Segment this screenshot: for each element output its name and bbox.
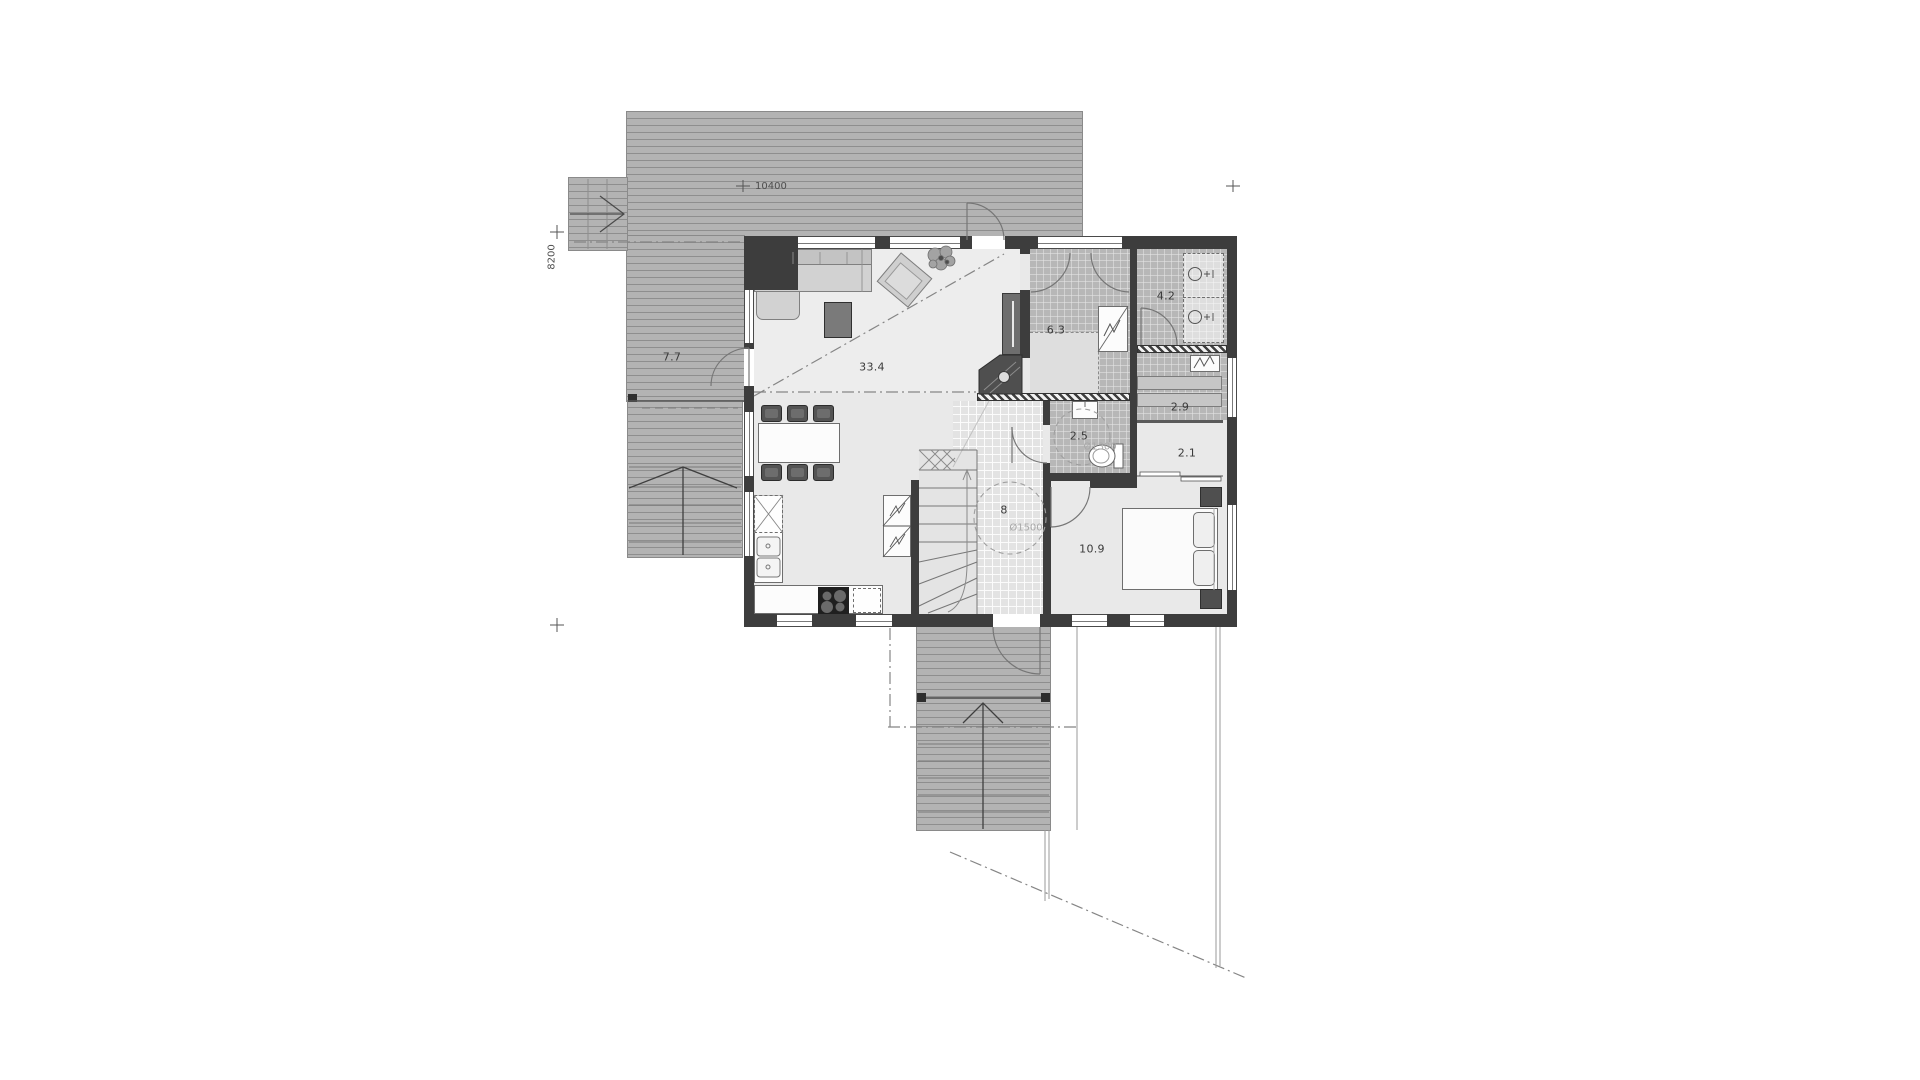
room-label-utility: 4.2 bbox=[1157, 290, 1175, 303]
wall bbox=[1107, 614, 1130, 627]
entrance-door-opening bbox=[993, 614, 1040, 627]
nightstand bbox=[1200, 487, 1222, 507]
wc-sink bbox=[1072, 401, 1098, 419]
room-label-bathroom: 6.3 bbox=[1047, 324, 1065, 337]
terrace-stair-landing bbox=[569, 178, 627, 250]
dining-chair bbox=[761, 405, 782, 422]
bathroom-cabinet bbox=[1098, 306, 1128, 352]
room-label-techroom: 2.9 bbox=[1171, 401, 1189, 414]
entrance-steps bbox=[917, 727, 1050, 830]
dining-table bbox=[758, 423, 840, 463]
wall-hatched bbox=[977, 393, 1130, 401]
window bbox=[744, 412, 754, 476]
window bbox=[1038, 236, 1122, 249]
wall bbox=[744, 556, 754, 627]
wall bbox=[1227, 236, 1237, 358]
wall-interior-thin bbox=[1137, 420, 1223, 423]
wall-interior bbox=[1020, 249, 1030, 254]
pillow bbox=[1193, 550, 1215, 586]
techroom-shelf bbox=[1137, 376, 1222, 390]
dining-chair bbox=[761, 464, 782, 481]
dimension-label-height: 8200 bbox=[547, 244, 558, 269]
window bbox=[744, 492, 754, 556]
turning-circle-label-hall: Ø1500 bbox=[1009, 523, 1042, 534]
wall bbox=[744, 386, 754, 412]
wall bbox=[892, 614, 993, 627]
dining-chair bbox=[813, 405, 834, 422]
nightstand bbox=[1200, 589, 1222, 609]
bathroom-floor-inset bbox=[1030, 332, 1099, 394]
entrance-porch-deck bbox=[917, 627, 1050, 727]
wall bbox=[1164, 614, 1237, 627]
terrace-door-opening bbox=[972, 236, 1005, 249]
deck-post bbox=[628, 394, 637, 402]
dining-chair bbox=[787, 464, 808, 481]
room-label-bedroom: 10.9 bbox=[1079, 543, 1105, 556]
kitchen-upper-cabinet bbox=[754, 495, 783, 533]
terrace-door-opening bbox=[744, 349, 754, 386]
wall bbox=[1005, 236, 1038, 249]
sofa-chaise bbox=[756, 291, 800, 320]
porch-post bbox=[917, 693, 926, 702]
wall bbox=[812, 614, 856, 627]
window bbox=[777, 614, 812, 627]
tall-cabinets-fridge-freezer bbox=[883, 495, 911, 557]
wall bbox=[1227, 417, 1237, 505]
side-terrace-deck bbox=[627, 236, 744, 401]
tv-bench bbox=[1002, 293, 1022, 355]
wall-interior bbox=[1020, 290, 1030, 358]
wall bbox=[1122, 236, 1237, 249]
wall-interior bbox=[1090, 480, 1137, 488]
wall-interior bbox=[1130, 249, 1137, 473]
water-heater bbox=[1190, 355, 1220, 372]
wall bbox=[1040, 614, 1072, 627]
wall-corner bbox=[744, 236, 798, 290]
room-label-closet: 2.1 bbox=[1178, 447, 1196, 460]
window bbox=[890, 236, 960, 249]
room-label-hall: 8 bbox=[1000, 504, 1007, 517]
porch-post bbox=[1041, 693, 1050, 702]
window bbox=[744, 290, 754, 343]
dimension-label-width: 10400 bbox=[755, 181, 787, 192]
window bbox=[1227, 358, 1237, 417]
wall-interior bbox=[911, 480, 919, 614]
wall bbox=[744, 476, 754, 492]
room-label-living: 33.4 bbox=[859, 361, 885, 374]
wall-hatched bbox=[1137, 345, 1227, 353]
wall-interior bbox=[1043, 481, 1051, 614]
turning-circle-label-wc: Ø1300 bbox=[1083, 442, 1116, 453]
hob bbox=[818, 587, 849, 614]
terrace-garden-steps bbox=[628, 401, 742, 557]
dining-chair bbox=[787, 405, 808, 422]
window bbox=[1130, 614, 1164, 627]
wall bbox=[960, 236, 972, 249]
window bbox=[1227, 505, 1237, 590]
wall bbox=[875, 236, 890, 249]
wall-interior bbox=[1043, 401, 1050, 425]
stair-floor bbox=[919, 450, 977, 614]
kitchen-wall-cabinet bbox=[853, 588, 881, 613]
coffee-table bbox=[824, 302, 852, 338]
dining-chair bbox=[813, 464, 834, 481]
laundry-cabinet-divider bbox=[1183, 297, 1224, 298]
window bbox=[1072, 614, 1107, 627]
upper-terrace-deck bbox=[627, 112, 1082, 236]
window bbox=[856, 614, 892, 627]
room-label-terrace: 7.7 bbox=[663, 351, 681, 364]
laundry-cabinet bbox=[1183, 253, 1224, 343]
floor-plan: 10400 8200 7.7 33.4 6.3 4.2 2.9 2.5 2.1 … bbox=[0, 0, 1920, 1080]
pillow bbox=[1193, 512, 1215, 548]
window bbox=[798, 236, 875, 249]
